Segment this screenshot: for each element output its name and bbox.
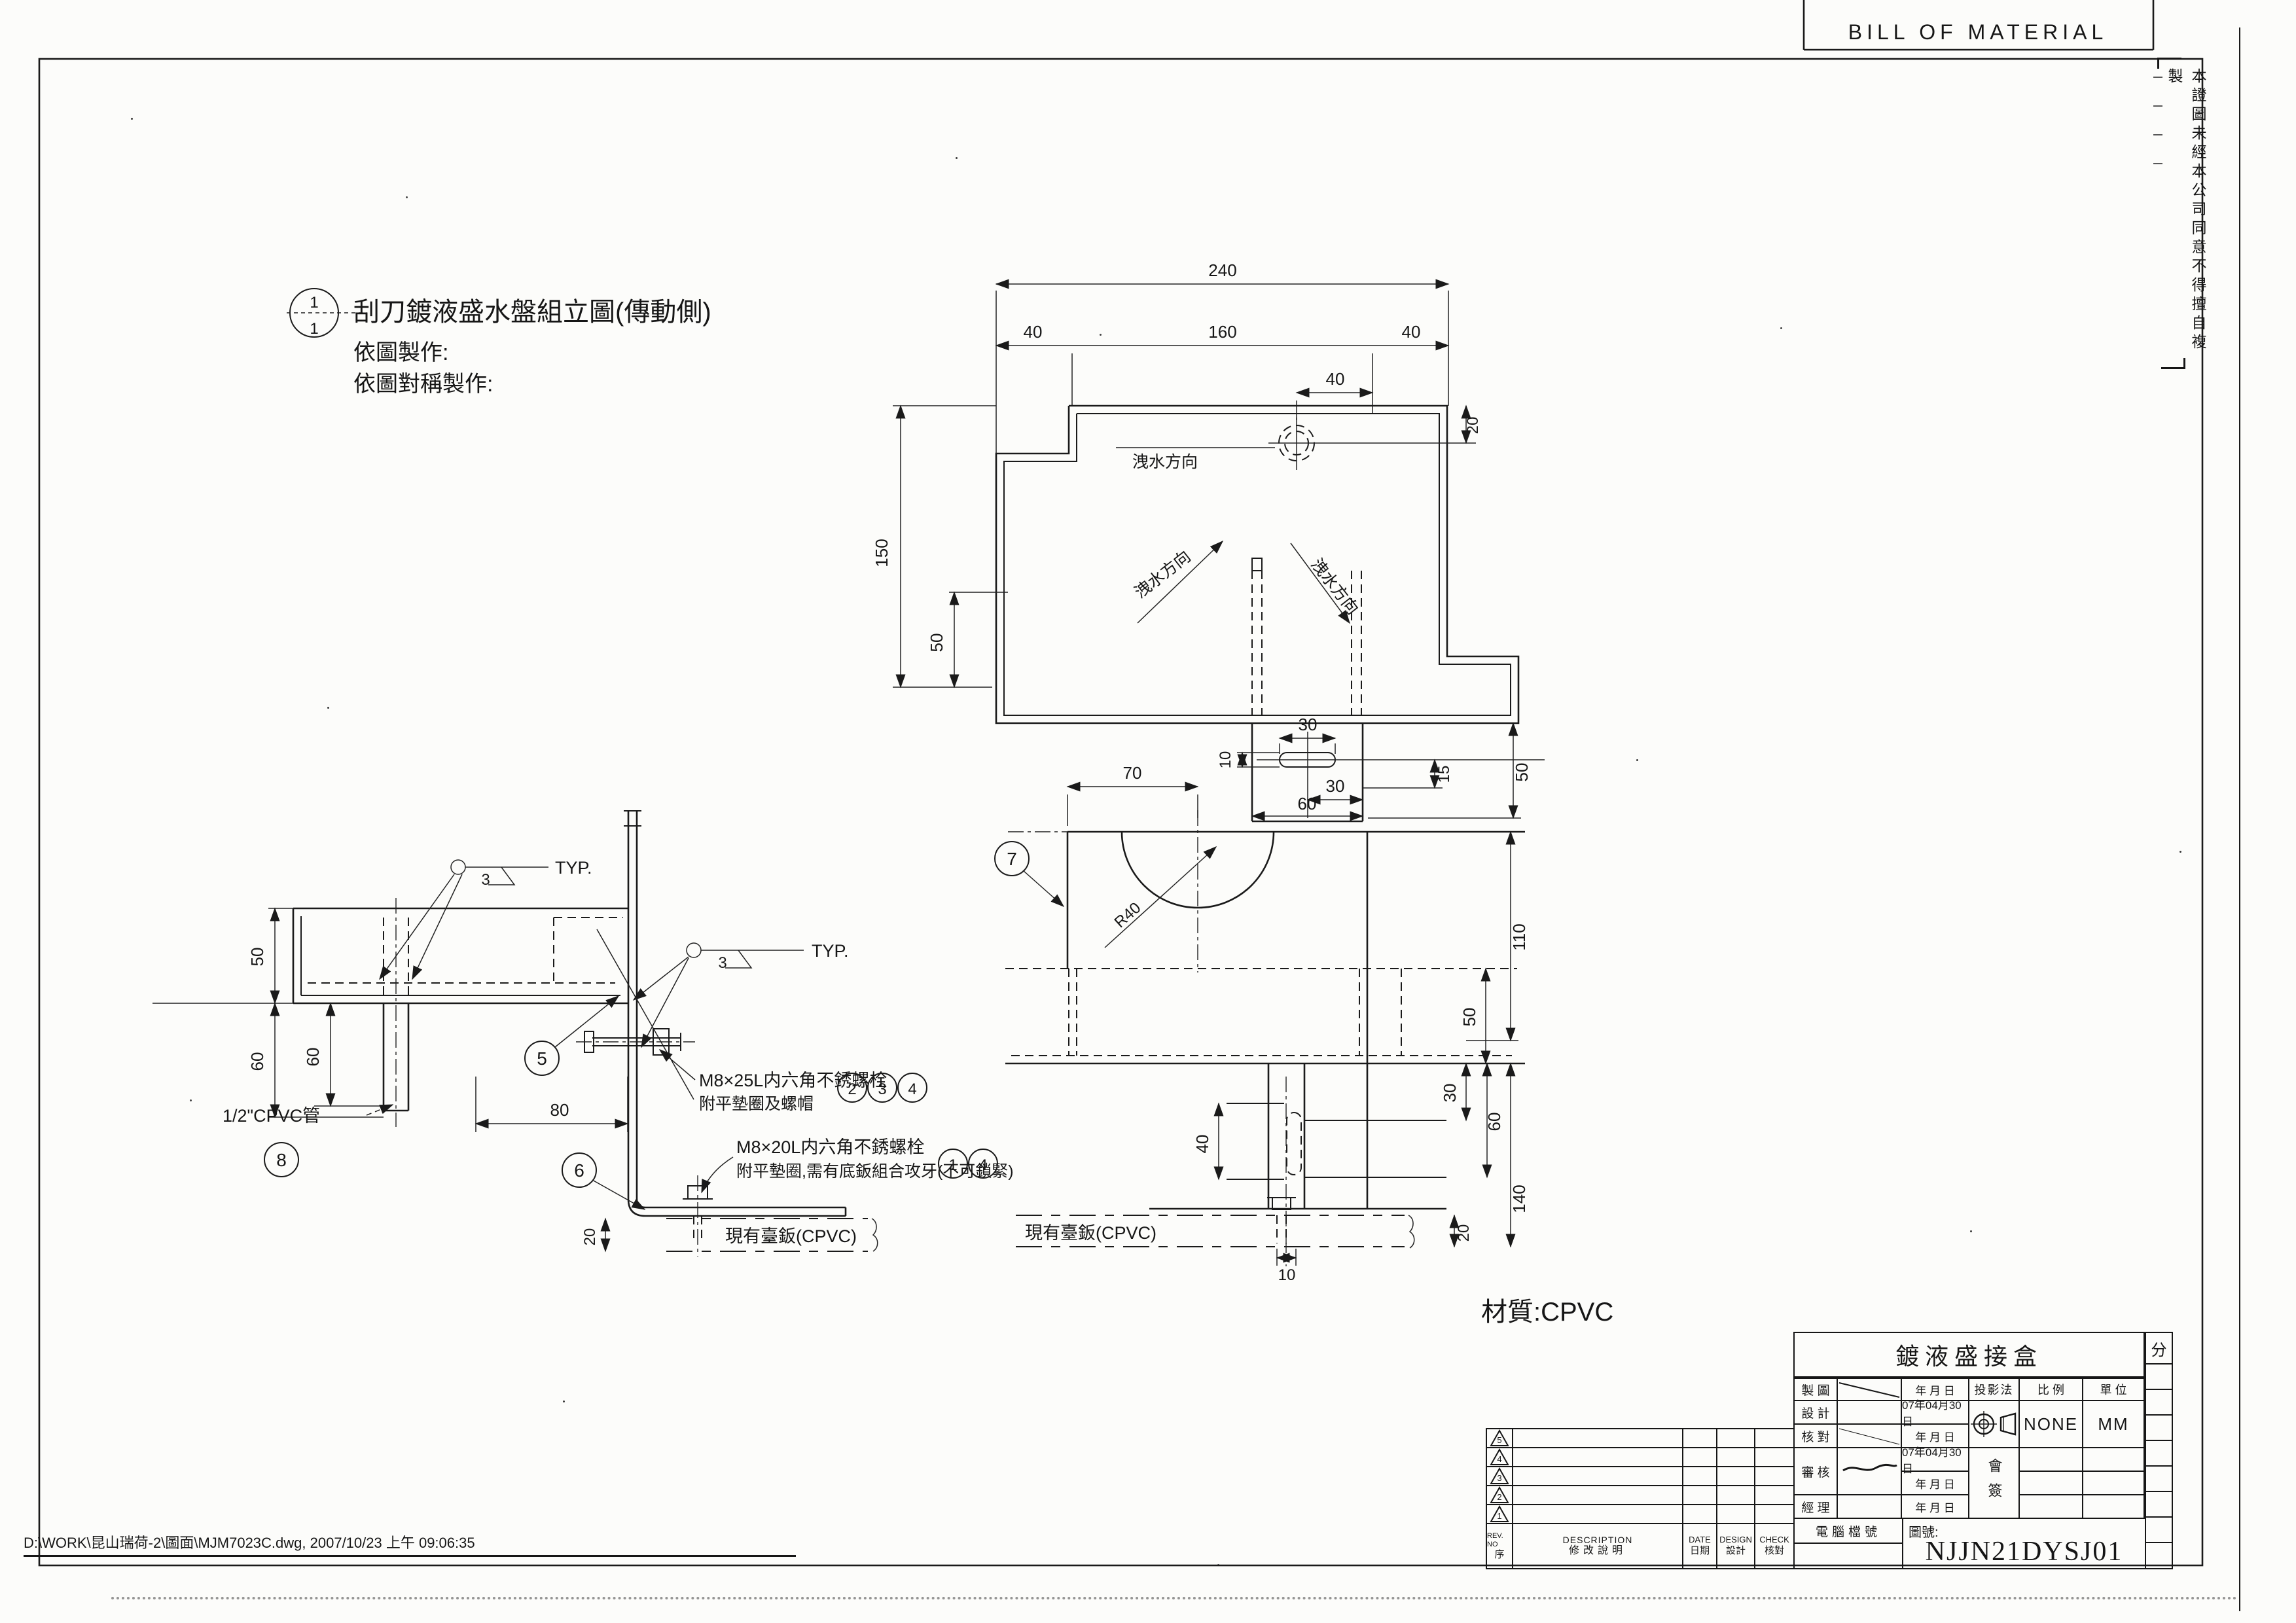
label-checker: 核 對 — [1801, 1427, 1829, 1445]
date-6: 年 月 日 — [1915, 1499, 1954, 1515]
plan-dim-160: 160 — [1208, 322, 1236, 342]
sec-dim-30: 30 — [1440, 1084, 1460, 1103]
rev-header-no: REV. NO 序 — [1486, 1523, 1513, 1569]
plan-dim-20: 20 — [1464, 417, 1482, 435]
class-empty-8 — [2145, 1542, 2173, 1569]
sig-auditor — [1837, 1447, 1902, 1495]
rev-header-no-en: REV. NO — [1487, 1532, 1512, 1548]
rev-triangle-icon: 4 — [1490, 1448, 1509, 1466]
class-empty-7 — [2145, 1516, 2173, 1543]
rev-desc-1 — [1512, 1504, 1683, 1524]
sig-manager — [1837, 1494, 1902, 1519]
dwg-no-cell: 圖號: NJJN21DYSJ01 — [1902, 1518, 2146, 1569]
tab-dim-30b: 30 — [1326, 776, 1345, 796]
unit-empty-2 — [2082, 1471, 2145, 1495]
class-empty-4 — [2145, 1440, 2173, 1467]
disclaimer-strip: 本證圖未經本公司同意不得擅自複製 — [2157, 58, 2186, 369]
scale-value: NONE — [2024, 1414, 2078, 1435]
row-label-manager: 經 理 — [1793, 1494, 1838, 1519]
rev-mark-row-3: 3 — [1486, 1466, 1513, 1486]
side-dim-60-inner: 60 — [303, 1048, 323, 1067]
assembly-balloon-bottom: 1 — [310, 320, 318, 338]
projection-label: 投影法 — [1975, 1381, 2014, 1398]
label-manager: 經 理 — [1801, 1498, 1829, 1516]
svg-text:2: 2 — [1497, 1492, 1501, 1502]
tab-dim-15: 15 — [1435, 766, 1453, 783]
class-empty-2 — [2145, 1389, 2173, 1416]
svg-text:4: 4 — [1497, 1454, 1501, 1464]
tab-dim-50: 50 — [1512, 763, 1532, 782]
scale-value-cell: NONE — [2018, 1400, 2083, 1448]
plan-dim-50: 50 — [927, 633, 946, 652]
bolt-note1-line1: M8×25L内六角不銹螺栓 — [699, 1071, 887, 1090]
section-view: 7 70 R40 40 — [995, 763, 1529, 1284]
date-cell-4: 07年04月30日 — [1901, 1447, 1969, 1472]
assembly-balloon-top: 1 — [310, 294, 318, 312]
sec-dim-140: 140 — [1509, 1185, 1529, 1213]
sig-slash — [1838, 1425, 1901, 1447]
sec-dim-40: 40 — [1193, 1135, 1212, 1154]
rev-mark-row-5: 5 — [1486, 1428, 1513, 1448]
projection-symbol-cell — [1968, 1400, 2020, 1448]
tab-dim-10: 10 — [1217, 751, 1234, 769]
scale-header: 比 例 — [2018, 1378, 2083, 1401]
pipe-label: 1/2"CPVC管 — [223, 1106, 320, 1126]
balloon-6: 6 — [574, 1160, 584, 1181]
unit-empty-3 — [2082, 1494, 2145, 1519]
tab-dim-30: 30 — [1299, 715, 1318, 734]
sec-base-label: 現有臺鈑(CPVC) — [1025, 1223, 1157, 1243]
scale-empty-1 — [2018, 1447, 2083, 1472]
file-no-value-cell — [1793, 1543, 1903, 1569]
rev-header-check: CHECK 核對 — [1754, 1523, 1795, 1569]
unit-empty-1 — [2082, 1447, 2145, 1472]
plan-drain-label-3: 洩水方向 — [1307, 555, 1362, 618]
row-label-designer: 設 計 — [1793, 1400, 1838, 1425]
rev-date-5 — [1682, 1428, 1717, 1448]
sig-slash — [1838, 1379, 1901, 1400]
scale-label: 比 例 — [2037, 1381, 2064, 1398]
class-cell: 分 — [2145, 1332, 2173, 1364]
rev-mark-row-4: 4 — [1486, 1447, 1513, 1467]
disclaimer-text: 本證圖未經本公司同意不得擅自複製 — [2162, 68, 2210, 360]
rev-triangle-icon: 2 — [1490, 1486, 1509, 1504]
rev-check-3 — [1754, 1466, 1795, 1486]
rev-mark-row-1: 1 — [1486, 1504, 1513, 1524]
rev-date-2 — [1682, 1485, 1717, 1505]
class-label: 分 — [2151, 1337, 2167, 1360]
rev-check-4 — [1754, 1447, 1795, 1467]
assembly-note: 1 1 刮刀鍍液盛水盤組立圖(傳動側) 依圖製作: 依圖對稱製作: — [287, 289, 711, 397]
file-no-cell: 電腦檔號 — [1793, 1518, 1903, 1544]
rev-desc-4 — [1512, 1447, 1683, 1467]
file-no-label: 電腦檔號 — [1816, 1522, 1881, 1540]
label-auditor: 審 核 — [1801, 1463, 1829, 1480]
class-empty-6 — [2145, 1491, 2173, 1518]
rev-header-check-en: CHECK — [1759, 1535, 1789, 1545]
rev-header-check-cn: 核對 — [1765, 1545, 1784, 1556]
unit-value-cell: MM — [2082, 1400, 2145, 1448]
balloon-5: 5 — [537, 1048, 547, 1069]
sig-checker — [1837, 1423, 1902, 1448]
part-title-cell: 鍍液盛接盒 — [1793, 1332, 2145, 1378]
rev-header-date-cn: 日期 — [1690, 1545, 1710, 1556]
drawing-sheet: BILL OF MATERIAL 1 1 刮刀鍍液盛水盤組立圖(傳動側) 依圖製… — [0, 0, 2296, 1623]
class-empty-1 — [2145, 1363, 2173, 1390]
rev-header-desc-cn: 修改說明 — [1569, 1545, 1626, 1557]
side-base-thk: 20 — [581, 1228, 599, 1246]
plan-drain-label-1: 洩水方向 — [1132, 453, 1198, 471]
rev-header-design-en: DESIGN — [1719, 1535, 1752, 1545]
rev-design-2 — [1716, 1485, 1755, 1505]
unit-label: 單 位 — [2100, 1381, 2126, 1398]
unit-value: MM — [2098, 1414, 2128, 1435]
rev-header-date-en: DATE — [1689, 1535, 1711, 1545]
rev-header-desc: DESCRIPTION 修改說明 — [1512, 1523, 1683, 1569]
rev-date-1 — [1682, 1504, 1717, 1524]
plan-dim-240: 240 — [1208, 260, 1236, 280]
rev-header-date: DATE 日期 — [1682, 1523, 1717, 1569]
date-1: 年 月 日 — [1915, 1382, 1954, 1398]
side-dim-60-outer: 60 — [247, 1052, 267, 1071]
tab-dim-60: 60 — [1298, 794, 1317, 813]
date-cell-5: 年 月 日 — [1901, 1471, 1969, 1495]
bolt-note2-line1: M8×20L内六角不銹螺栓 — [736, 1137, 924, 1157]
sec-base-thk: 20 — [1455, 1224, 1473, 1242]
date-5: 年 月 日 — [1915, 1475, 1954, 1491]
bolt-note1-balloon-2: 2 — [848, 1080, 856, 1098]
plan-view: 240 40 160 40 40 20 洩水方向 洩水方向 洩水方向 — [872, 260, 1545, 821]
rev-design-3 — [1716, 1466, 1755, 1486]
bolt-note2-line2: 附平墊圈,需有底鈑組合攻牙(不可鎖緊) — [736, 1162, 1014, 1181]
svg-text:3: 3 — [1497, 1473, 1501, 1483]
side-base-label: 現有臺鈑(CPVC) — [725, 1226, 857, 1246]
label-designer: 設 計 — [1801, 1404, 1829, 1421]
file-path: D:\WORK\昆山瑞荷-2\圖面\MJM7023C.dwg, 2007/10/… — [24, 1531, 796, 1557]
row-label-auditor: 審 核 — [1793, 1447, 1838, 1495]
assembly-title: 刮刀鍍液盛水盤組立圖(傳動側) — [353, 298, 711, 327]
row-label-checker: 核 對 — [1793, 1423, 1838, 1448]
rev-design-1 — [1716, 1504, 1755, 1524]
plan-dim-40R: 40 — [1402, 322, 1421, 342]
plan-dim-hole-40: 40 — [1326, 369, 1345, 389]
plan-dim-40L: 40 — [1024, 322, 1043, 342]
scan-artifact-line — [111, 1597, 2238, 1599]
rev-header-no-cn: 序 — [1494, 1549, 1504, 1560]
label-drafter: 製 圖 — [1801, 1381, 1829, 1399]
rev-triangle-icon: 3 — [1490, 1467, 1509, 1485]
dwg-no: NJJN21DYSJ01 — [1903, 1536, 2145, 1567]
sec-dim-70: 70 — [1123, 763, 1142, 783]
countersign-cell: 會簽 — [1968, 1447, 2020, 1519]
weld-typ-1: TYP. — [555, 858, 592, 878]
rev-date-4 — [1682, 1447, 1717, 1467]
plan-drain-label-2: 洩水方向 — [1131, 547, 1194, 602]
rev-desc-5 — [1512, 1428, 1683, 1448]
sec-dim-110: 110 — [1509, 923, 1529, 950]
disclaimer-bracket-top — [2157, 58, 2181, 69]
sec-dim-r40: R40 — [1111, 899, 1145, 932]
assembly-line2: 依圖對稱製作: — [353, 372, 493, 397]
class-empty-3 — [2145, 1414, 2173, 1441]
date-cell-6: 年 月 日 — [1901, 1494, 1969, 1519]
weld-size-1: 3 — [481, 871, 490, 889]
rev-triangle-icon: 1 — [1490, 1505, 1509, 1523]
bolt-note1-balloon-3: 3 — [878, 1080, 886, 1098]
sec-dim-50: 50 — [1460, 1008, 1479, 1027]
unit-header: 單 位 — [2082, 1378, 2145, 1401]
bolt-notes: M8×25L内六角不銹螺栓 附平墊圈及螺帽 2 3 4 M8×20L内六角不銹螺… — [660, 1050, 1014, 1192]
date-3: 年 月 日 — [1915, 1428, 1954, 1444]
side-dim-50: 50 — [247, 948, 267, 967]
side-view: 3 TYP. 3 TYP. 50 60 60 1/2"CPVC管 8 5 — [152, 811, 878, 1257]
rev-mark-row-2: 2 — [1486, 1485, 1513, 1505]
weld-typ-2: TYP. — [812, 941, 849, 961]
svg-text:1: 1 — [1497, 1511, 1501, 1521]
rev-design-4 — [1716, 1447, 1755, 1467]
class-empty-5 — [2145, 1465, 2173, 1492]
date-cell-2: 07年04月30日 — [1901, 1400, 1969, 1425]
projection-symbol-icon — [1969, 1404, 2018, 1444]
rev-check-1 — [1754, 1504, 1795, 1524]
sec-dim-10: 10 — [1278, 1266, 1296, 1284]
rev-header-design: DESIGN 設計 — [1716, 1523, 1755, 1569]
rev-triangle-icon: 5 — [1490, 1429, 1509, 1447]
bolt-note1-balloon-4: 4 — [908, 1080, 916, 1098]
rev-design-5 — [1716, 1428, 1755, 1448]
side-dim-80: 80 — [550, 1100, 569, 1120]
row-label-drafter: 製 圖 — [1793, 1378, 1838, 1401]
part-title: 鍍液盛接盒 — [1895, 1338, 2043, 1372]
plan-dim-150: 150 — [872, 539, 891, 567]
revision-table: 5 4 3 2 1 REV. NO 序 DESCRIPTION 修改說明 DAT… — [1486, 1332, 1793, 1569]
rev-header-desc-en: DESCRIPTION — [1563, 1535, 1633, 1545]
balloon-8: 8 — [276, 1150, 287, 1170]
scale-empty-3 — [2018, 1494, 2083, 1519]
sig-drafter — [1837, 1378, 1902, 1401]
scale-empty-2 — [2018, 1471, 2083, 1495]
svg-text:5: 5 — [1497, 1435, 1501, 1445]
bolt-note2-balloon-4: 4 — [978, 1156, 987, 1174]
bolt-note1-line2: 附平墊圈及螺帽 — [699, 1095, 814, 1113]
sec-dim-60: 60 — [1484, 1113, 1504, 1132]
projection-header: 投影法 — [1968, 1378, 2020, 1401]
bill-of-material-box: BILL OF MATERIAL — [1804, 0, 2162, 164]
assembly-line1: 依圖製作: — [353, 340, 448, 365]
rev-check-2 — [1754, 1485, 1795, 1505]
rev-date-3 — [1682, 1466, 1717, 1486]
balloon-7: 7 — [1007, 849, 1017, 869]
bolt-note2-balloon-1: 1 — [948, 1156, 957, 1174]
rev-desc-3 — [1512, 1466, 1683, 1486]
rev-header-design-cn: 設計 — [1726, 1545, 1746, 1556]
bom-title: BILL OF MATERIAL — [1848, 20, 2108, 44]
rev-check-5 — [1754, 1428, 1795, 1448]
rev-desc-2 — [1512, 1485, 1683, 1505]
sig-mark — [1838, 1448, 1901, 1494]
sig-designer — [1837, 1400, 1902, 1425]
weld-size-2: 3 — [718, 954, 726, 972]
material-note: 材質:CPVC — [1481, 1298, 1613, 1327]
countersign-label: 會簽 — [1984, 1458, 2005, 1508]
